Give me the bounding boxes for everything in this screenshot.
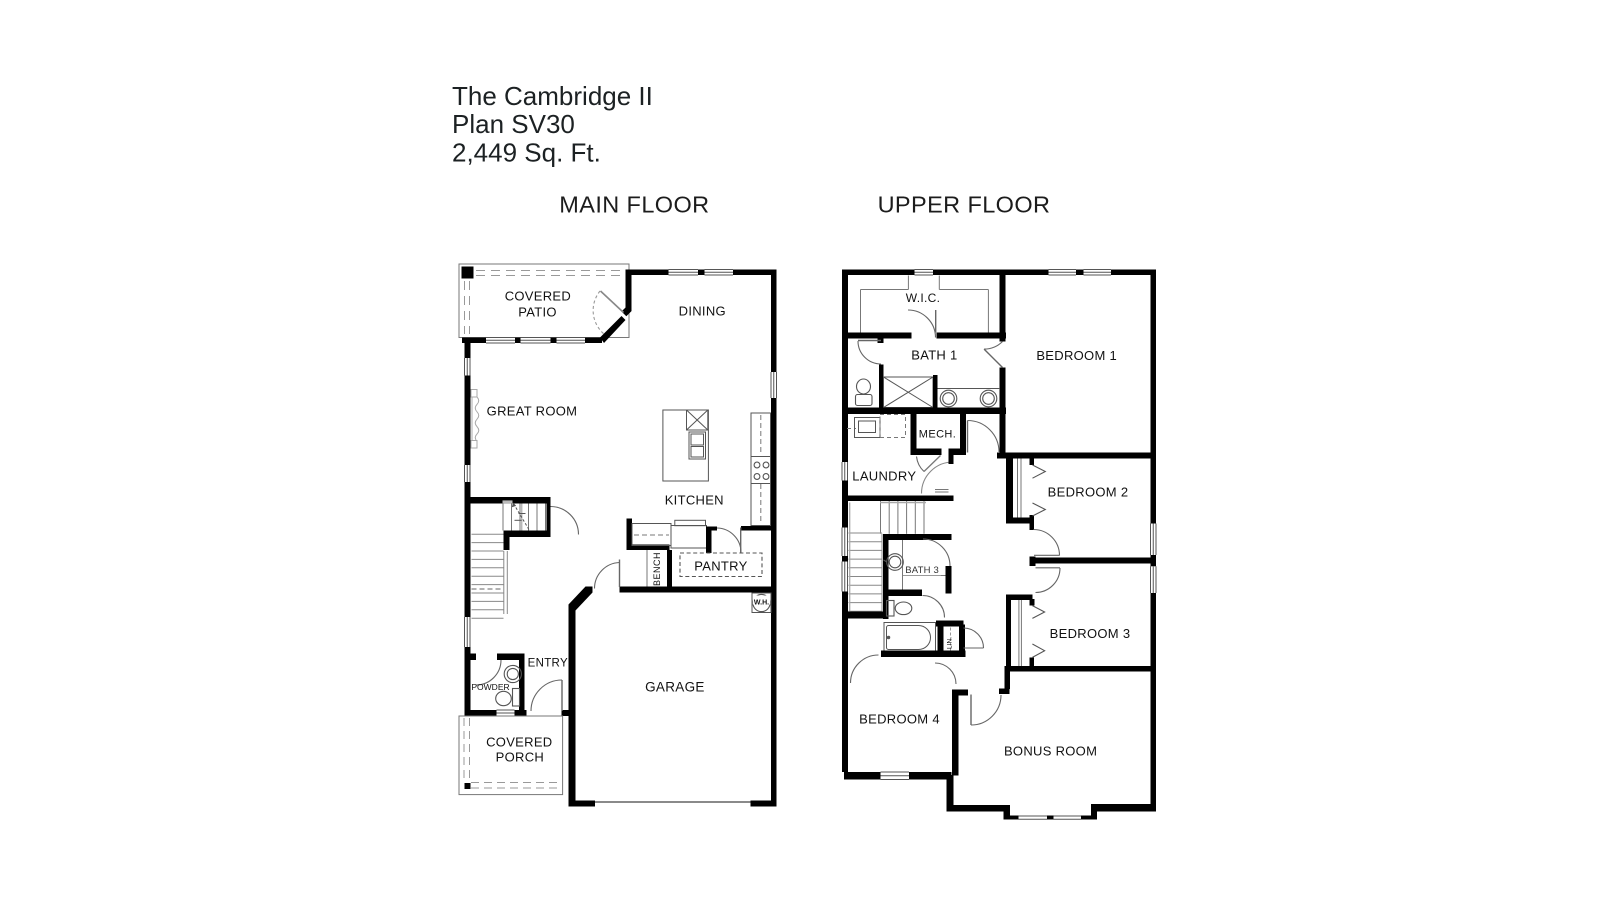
svg-text:BATH 1: BATH 1: [911, 348, 957, 363]
svg-text:The Cambridge II: The Cambridge II: [452, 81, 653, 111]
svg-text:COVERED: COVERED: [486, 735, 552, 750]
svg-text:BATH 3: BATH 3: [905, 565, 939, 576]
svg-text:UPPER FLOOR: UPPER FLOOR: [878, 192, 1051, 218]
svg-text:PORCH: PORCH: [496, 750, 544, 765]
svg-text:POWDER: POWDER: [471, 682, 509, 692]
svg-text:BEDROOM 1: BEDROOM 1: [1036, 348, 1117, 363]
svg-text:MAIN FLOOR: MAIN FLOOR: [559, 192, 709, 218]
svg-text:BEDROOM 2: BEDROOM 2: [1048, 485, 1129, 500]
svg-text:BONUS ROOM: BONUS ROOM: [1004, 743, 1097, 758]
svg-text:MECH.: MECH.: [919, 429, 956, 441]
svg-text:BEDROOM 3: BEDROOM 3: [1050, 626, 1131, 641]
svg-text:COVERED: COVERED: [505, 289, 571, 304]
svg-text:DINING: DINING: [679, 304, 726, 319]
svg-text:ENTRY: ENTRY: [528, 657, 568, 669]
svg-text:Plan SV30: Plan SV30: [452, 109, 575, 139]
svg-text:PANTRY: PANTRY: [694, 559, 747, 574]
svg-text:LIN.: LIN.: [947, 637, 954, 649]
svg-text:W.I.C.: W.I.C.: [906, 291, 940, 305]
svg-text:LAUNDRY: LAUNDRY: [852, 469, 916, 484]
svg-text:GREAT ROOM: GREAT ROOM: [487, 404, 578, 419]
svg-text:GARAGE: GARAGE: [645, 680, 705, 695]
svg-text:BEDROOM 4: BEDROOM 4: [859, 711, 940, 726]
svg-text:PATIO: PATIO: [518, 305, 557, 320]
svg-text:BENCH: BENCH: [652, 552, 662, 586]
svg-text:W.H.: W.H.: [754, 600, 769, 607]
svg-text:KITCHEN: KITCHEN: [665, 493, 724, 508]
svg-text:2,449 Sq. Ft.: 2,449 Sq. Ft.: [452, 138, 601, 168]
